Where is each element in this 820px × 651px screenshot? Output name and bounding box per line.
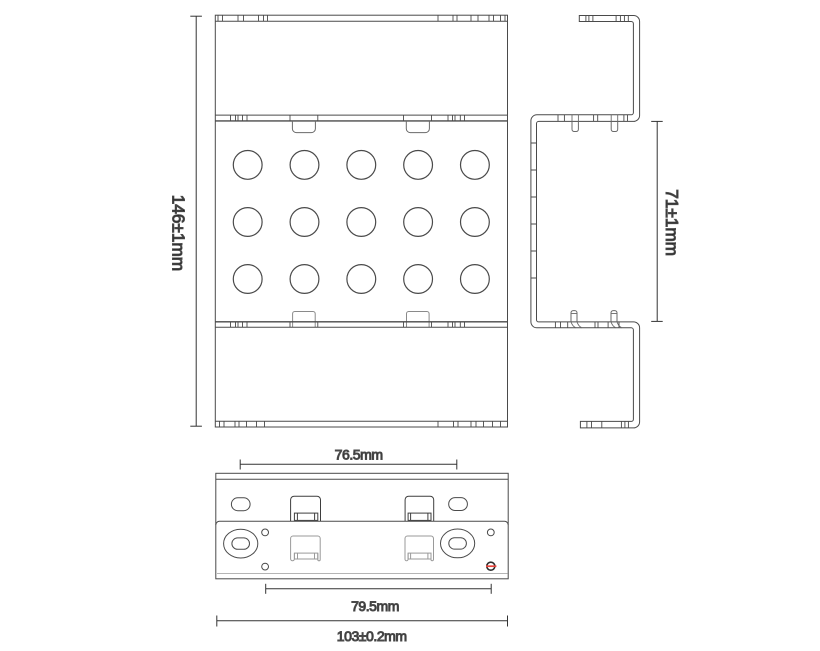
svg-text:146±1mm: 146±1mm: [169, 195, 189, 271]
svg-text:71±1mm: 71±1mm: [662, 189, 682, 256]
svg-text:103±0.2mm: 103±0.2mm: [337, 628, 407, 644]
svg-text:79.5mm: 79.5mm: [351, 598, 399, 614]
svg-text:76.5mm: 76.5mm: [335, 447, 383, 463]
